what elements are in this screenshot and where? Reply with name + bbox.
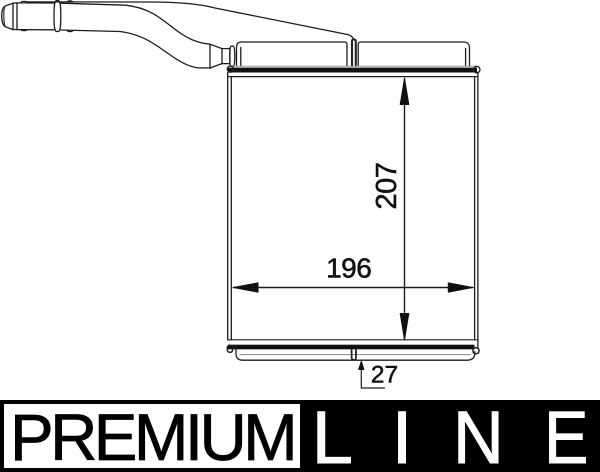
svg-text:207: 207: [371, 163, 403, 210]
svg-text:196: 196: [326, 252, 371, 283]
svg-text:27: 27: [371, 362, 398, 389]
